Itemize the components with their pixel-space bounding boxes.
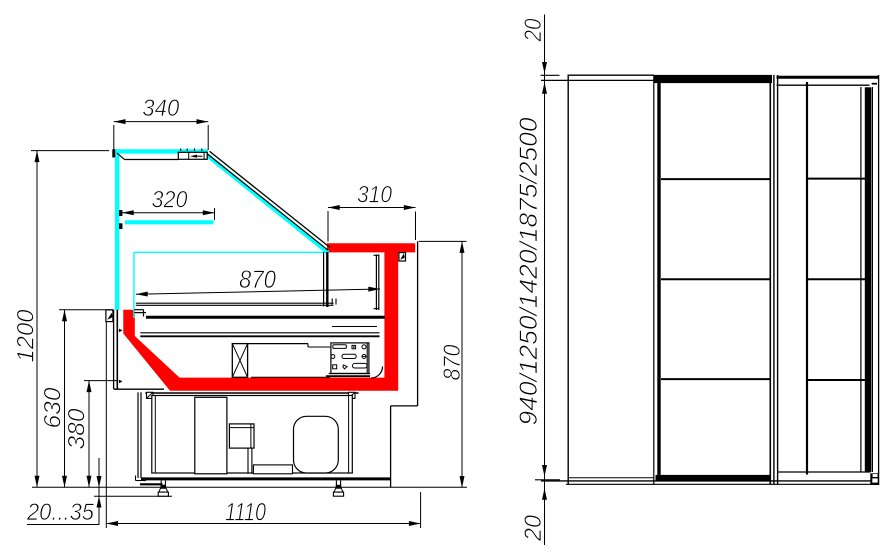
svg-text:870: 870 [439,344,466,381]
svg-text:20...35: 20...35 [26,499,94,526]
svg-text:310: 310 [357,182,393,209]
svg-text:870: 870 [239,266,276,294]
svg-text:1110: 1110 [225,499,266,527]
svg-text:940/1250/1420/1875/2500: 940/1250/1420/1875/2500 [515,117,543,425]
svg-text:320: 320 [152,186,189,213]
svg-text:340: 340 [142,95,180,122]
svg-text:1200: 1200 [13,309,40,363]
svg-text:380: 380 [64,408,91,450]
svg-text:20: 20 [520,514,547,542]
svg-text:20: 20 [520,18,547,42]
svg-text:630: 630 [40,387,67,429]
